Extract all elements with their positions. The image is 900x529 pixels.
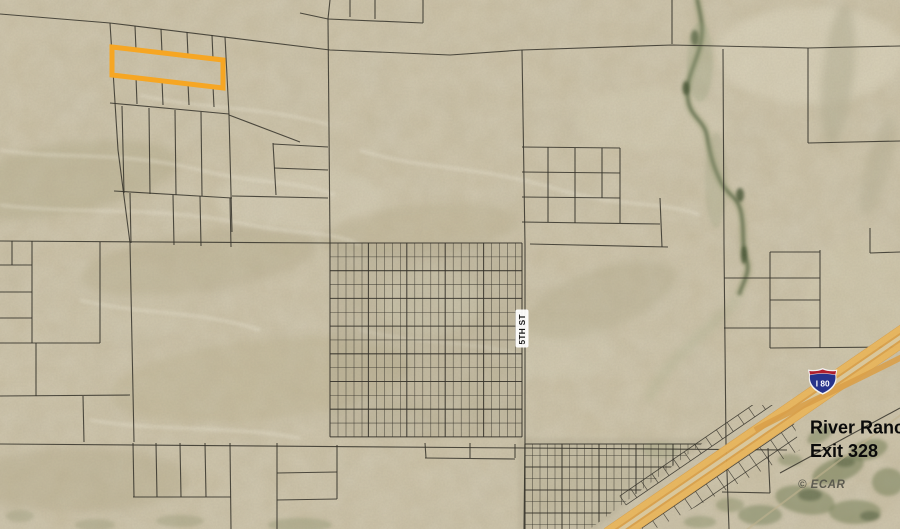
street-label-group: 5TH ST (516, 310, 529, 348)
map-canvas[interactable]: 5TH ST I 80 River Ranch Exit 328 © ECAR (0, 0, 900, 529)
street-label: 5TH ST (517, 314, 527, 344)
shield-route-number: I 80 (816, 380, 830, 389)
region-label-line1: River Ranch (810, 418, 900, 438)
watermark: © ECAR (798, 479, 845, 491)
region-label-line2: Exit 328 (810, 441, 878, 461)
